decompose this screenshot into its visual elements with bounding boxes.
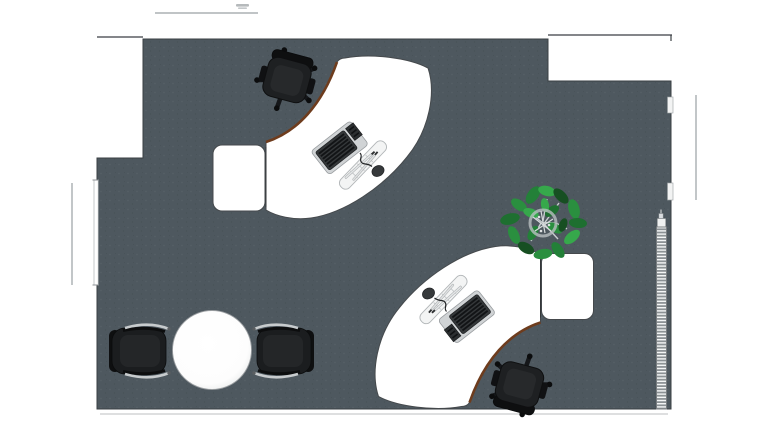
door-jamb-right-top bbox=[668, 97, 674, 113]
round-meeting-table bbox=[173, 311, 252, 390]
radiator bbox=[657, 210, 667, 410]
radiator-header bbox=[657, 219, 665, 228]
guest-chair-right bbox=[252, 325, 314, 378]
radiator-valve bbox=[659, 214, 663, 219]
floor-plan-canvas bbox=[0, 0, 768, 432]
radiator-valve-stem bbox=[660, 210, 662, 214]
floor-plan-drawing bbox=[0, 0, 768, 432]
radiator-fins bbox=[657, 227, 667, 409]
door-jamb-right-bottom bbox=[668, 183, 674, 200]
guest-chair-left bbox=[109, 325, 171, 378]
